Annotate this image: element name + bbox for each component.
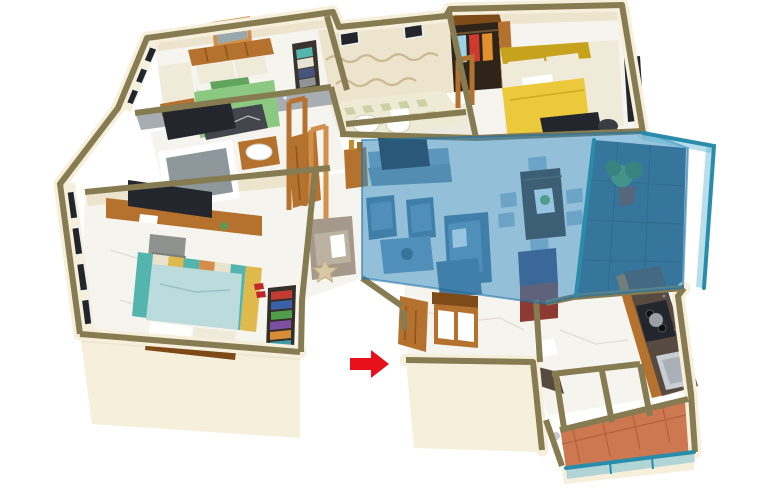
railing-post <box>610 462 611 474</box>
door-panel-line <box>415 310 416 344</box>
hanging-shirt-orange <box>482 33 493 61</box>
pillow <box>546 53 581 76</box>
washbasin <box>246 144 272 160</box>
console-panel <box>458 312 474 342</box>
desk-plant <box>220 222 228 230</box>
armchair-pillow <box>330 234 346 258</box>
mosaic-dot <box>283 96 286 99</box>
living-dining-highlight[interactable] <box>362 132 688 304</box>
red-slippers <box>256 291 266 298</box>
bottle <box>349 140 354 150</box>
bathroom-window-icon <box>340 31 359 46</box>
console-panel <box>438 310 454 340</box>
blue-bed-duvet <box>146 264 242 330</box>
granite-speck <box>663 295 666 298</box>
pan <box>649 313 663 327</box>
railing-post <box>652 457 653 469</box>
south-face-foyer <box>406 360 540 452</box>
entrance-arrow-icon <box>350 350 389 378</box>
red-slippers <box>254 283 264 290</box>
floor-plan-render <box>0 0 769 499</box>
